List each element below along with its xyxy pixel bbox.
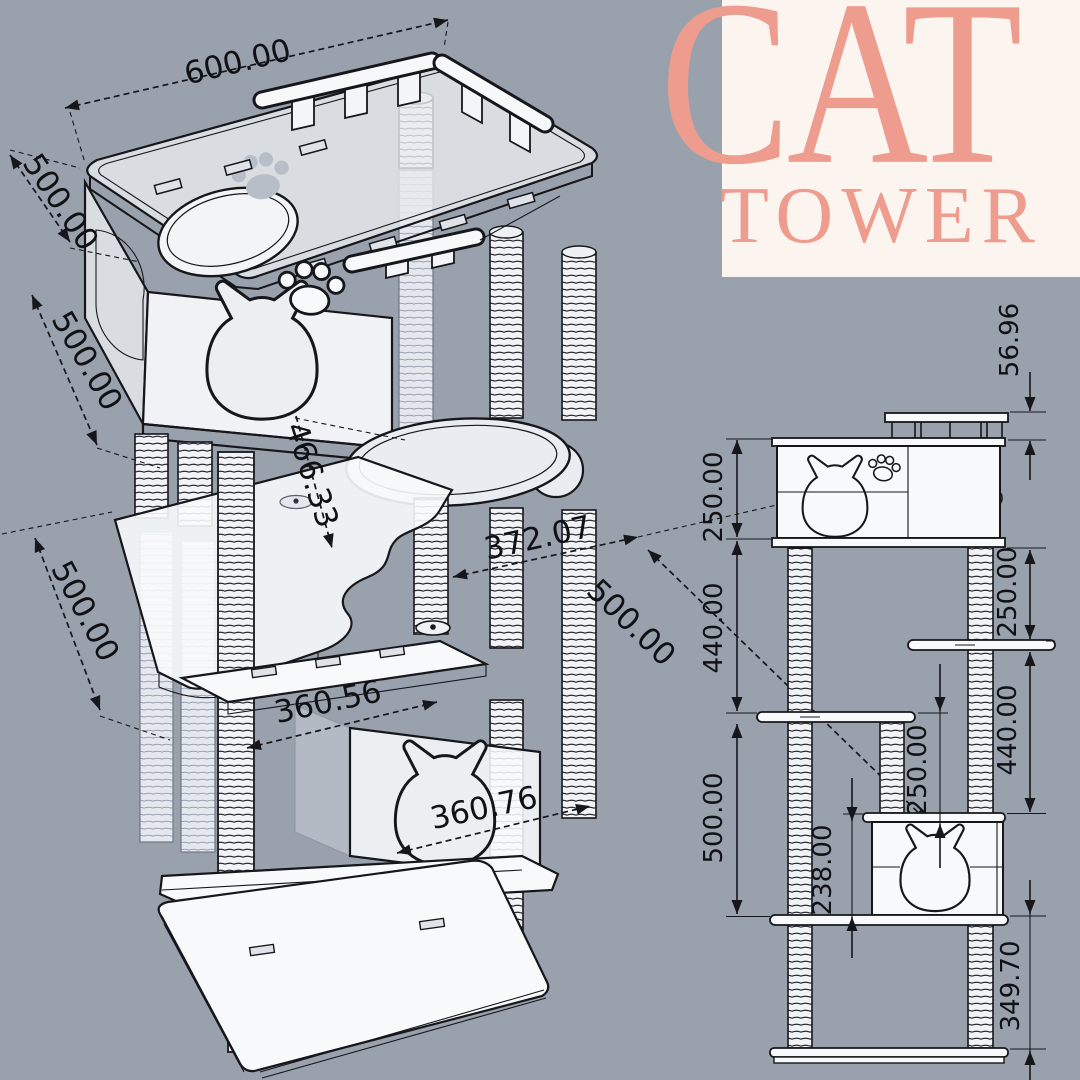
dim-label-base-gap: 349.70	[996, 941, 1026, 1032]
dim-label-left-gap: 440.00	[699, 583, 729, 674]
dim-left-gap: 440.00	[699, 541, 737, 711]
dim-label-left-lower-gap: 500.00	[699, 773, 729, 864]
dim-lower-box-height: 238.00	[808, 778, 852, 958]
page-subtitle: TOWER	[720, 176, 1043, 256]
dim-label-railing-height: 56.96	[995, 303, 1025, 377]
elev-base	[770, 1048, 1008, 1063]
dim-left-lower-gap: 500.00	[699, 724, 737, 914]
dim-label-top-width: 600.00	[181, 32, 295, 92]
elev-railing	[885, 413, 1008, 438]
elev-top-box	[772, 438, 1005, 547]
cat-head-elev-lower	[900, 825, 969, 912]
title-panel: CAT TOWER	[722, 0, 1080, 277]
elev-right-platform	[908, 640, 1055, 650]
elev-post-small	[880, 722, 904, 813]
dim-label-mid-height: 500.00	[43, 555, 126, 668]
dim-label-mid-platform-gap: 250.00	[903, 725, 933, 816]
elevation-view: 56.96 250.00 440.00 500.00 250.00 440.00…	[699, 303, 1055, 1080]
dim-left-box-height: 250.00	[699, 440, 737, 542]
dim-label-right-lower-gap: 440.00	[993, 685, 1023, 776]
dim-right-lower-gap: 440.00	[993, 652, 1030, 812]
elev-post-left	[788, 548, 812, 1048]
dim-label-right-upper-gap: 250.00	[993, 547, 1023, 638]
dim-label-left-box-height: 250.00	[699, 452, 729, 543]
dim-right-depth: 500.00	[579, 550, 928, 822]
elev-lower-box	[863, 813, 1005, 915]
elev-mid-platform	[757, 712, 915, 722]
lower-box-left-face	[295, 705, 350, 856]
dim-right-upper-gap: 250.00	[993, 547, 1030, 639]
poster: 600.00 500.00 500.00 500.00 466.33 372.0…	[0, 0, 1080, 1080]
elev-bottom-platform	[770, 915, 1008, 925]
dim-label-lower-box-height: 238.00	[808, 825, 838, 916]
